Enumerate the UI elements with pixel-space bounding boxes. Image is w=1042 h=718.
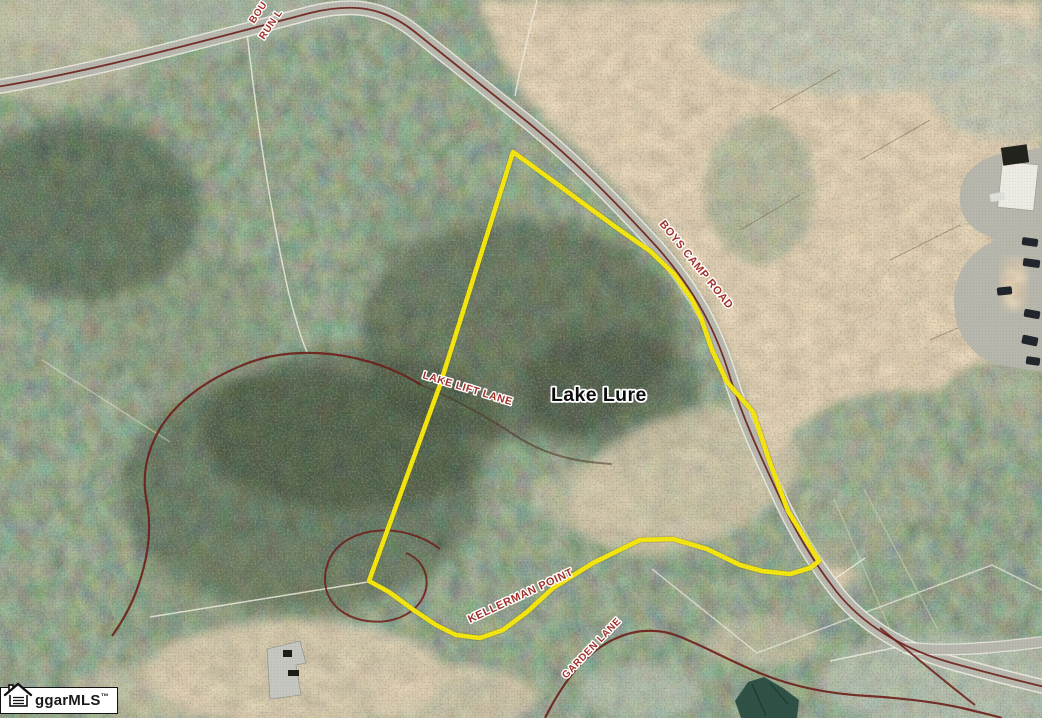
- mls-watermark-text: ggarMLS™: [35, 693, 109, 708]
- aerial-map[interactable]: BOU RUN L BOYS CAMP ROAD LAKE LIFT LANE …: [0, 0, 1042, 718]
- place-label-lake-lure: Lake Lure: [551, 384, 647, 406]
- house-icon: [3, 681, 33, 710]
- mls-watermark: ggarMLS™: [0, 687, 118, 714]
- aerial-map-canvas: BOU RUN L BOYS CAMP ROAD LAKE LIFT LANE …: [0, 0, 1042, 718]
- halftone-overlay: [0, 0, 1042, 718]
